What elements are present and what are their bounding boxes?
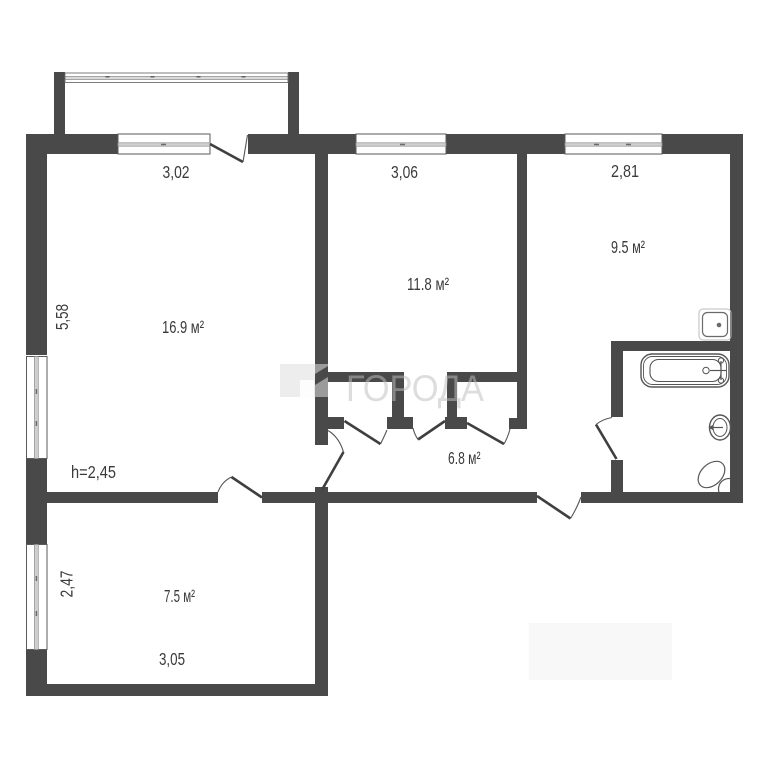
svg-text:16.9 м²: 16.9 м² xyxy=(162,317,204,337)
svg-text:h=2,45: h=2,45 xyxy=(71,462,116,482)
svg-text:2,47: 2,47 xyxy=(57,571,77,598)
svg-text:9.5 м²: 9.5 м² xyxy=(611,237,645,257)
svg-text:11.8 м²: 11.8 м² xyxy=(407,274,449,294)
svg-text:3,05: 3,05 xyxy=(159,649,185,669)
svg-text:2,81: 2,81 xyxy=(611,161,639,181)
svg-text:3,06: 3,06 xyxy=(391,162,418,182)
svg-text:7.5 м²: 7.5 м² xyxy=(164,586,195,606)
svg-text:6.8 м²: 6.8 м² xyxy=(448,448,481,468)
svg-text:3,02: 3,02 xyxy=(163,162,190,182)
svg-text:5,58: 5,58 xyxy=(52,304,72,330)
svg-text:ГОРОДА: ГОРОДА xyxy=(346,368,484,409)
